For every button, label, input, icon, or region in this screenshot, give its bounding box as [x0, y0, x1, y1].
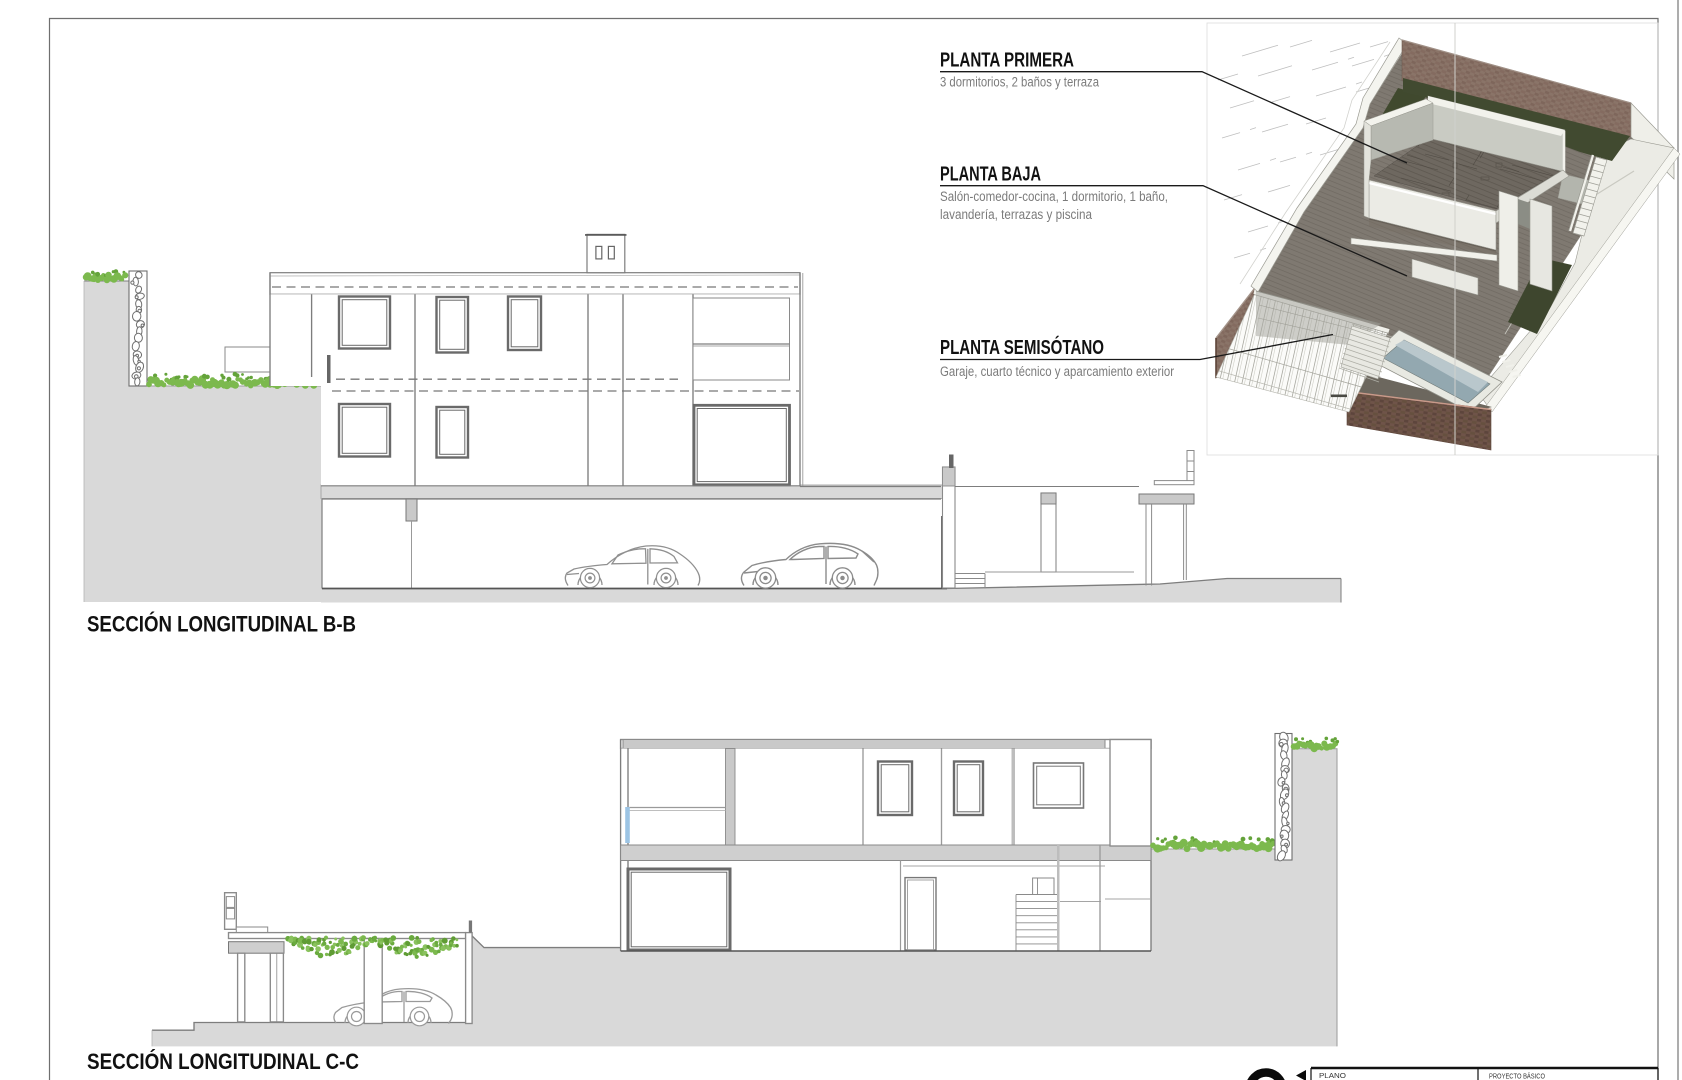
svg-text:Garaje, cuarto técnico y aparc: Garaje, cuarto técnico y aparcamiento ex… — [940, 364, 1174, 379]
svg-text:3 dormitorios, 2 baños y terra: 3 dormitorios, 2 baños y terraza — [940, 75, 1099, 90]
svg-text:SECCIÓN LONGITUDINAL B-B: SECCIÓN LONGITUDINAL B-B — [87, 612, 356, 637]
svg-text:PLANTA SEMISÓTANO: PLANTA SEMISÓTANO — [940, 335, 1104, 359]
svg-text:SECCIÓN LONGITUDINAL C-C: SECCIÓN LONGITUDINAL C-C — [87, 1049, 359, 1074]
svg-text:PLANTA PRIMERA: PLANTA PRIMERA — [940, 50, 1074, 72]
svg-text:lavandería, terrazas y piscina: lavandería, terrazas y piscina — [940, 207, 1092, 222]
svg-text:PLANTA BAJA: PLANTA BAJA — [940, 164, 1041, 186]
svg-text:PROYECTO BÁSICO: PROYECTO BÁSICO — [1489, 1072, 1545, 1080]
svg-text:PLANO: PLANO — [1319, 1071, 1346, 1080]
svg-text:Salón-comedor-cocina, 1 dormit: Salón-comedor-cocina, 1 dormitorio, 1 ba… — [940, 189, 1168, 204]
